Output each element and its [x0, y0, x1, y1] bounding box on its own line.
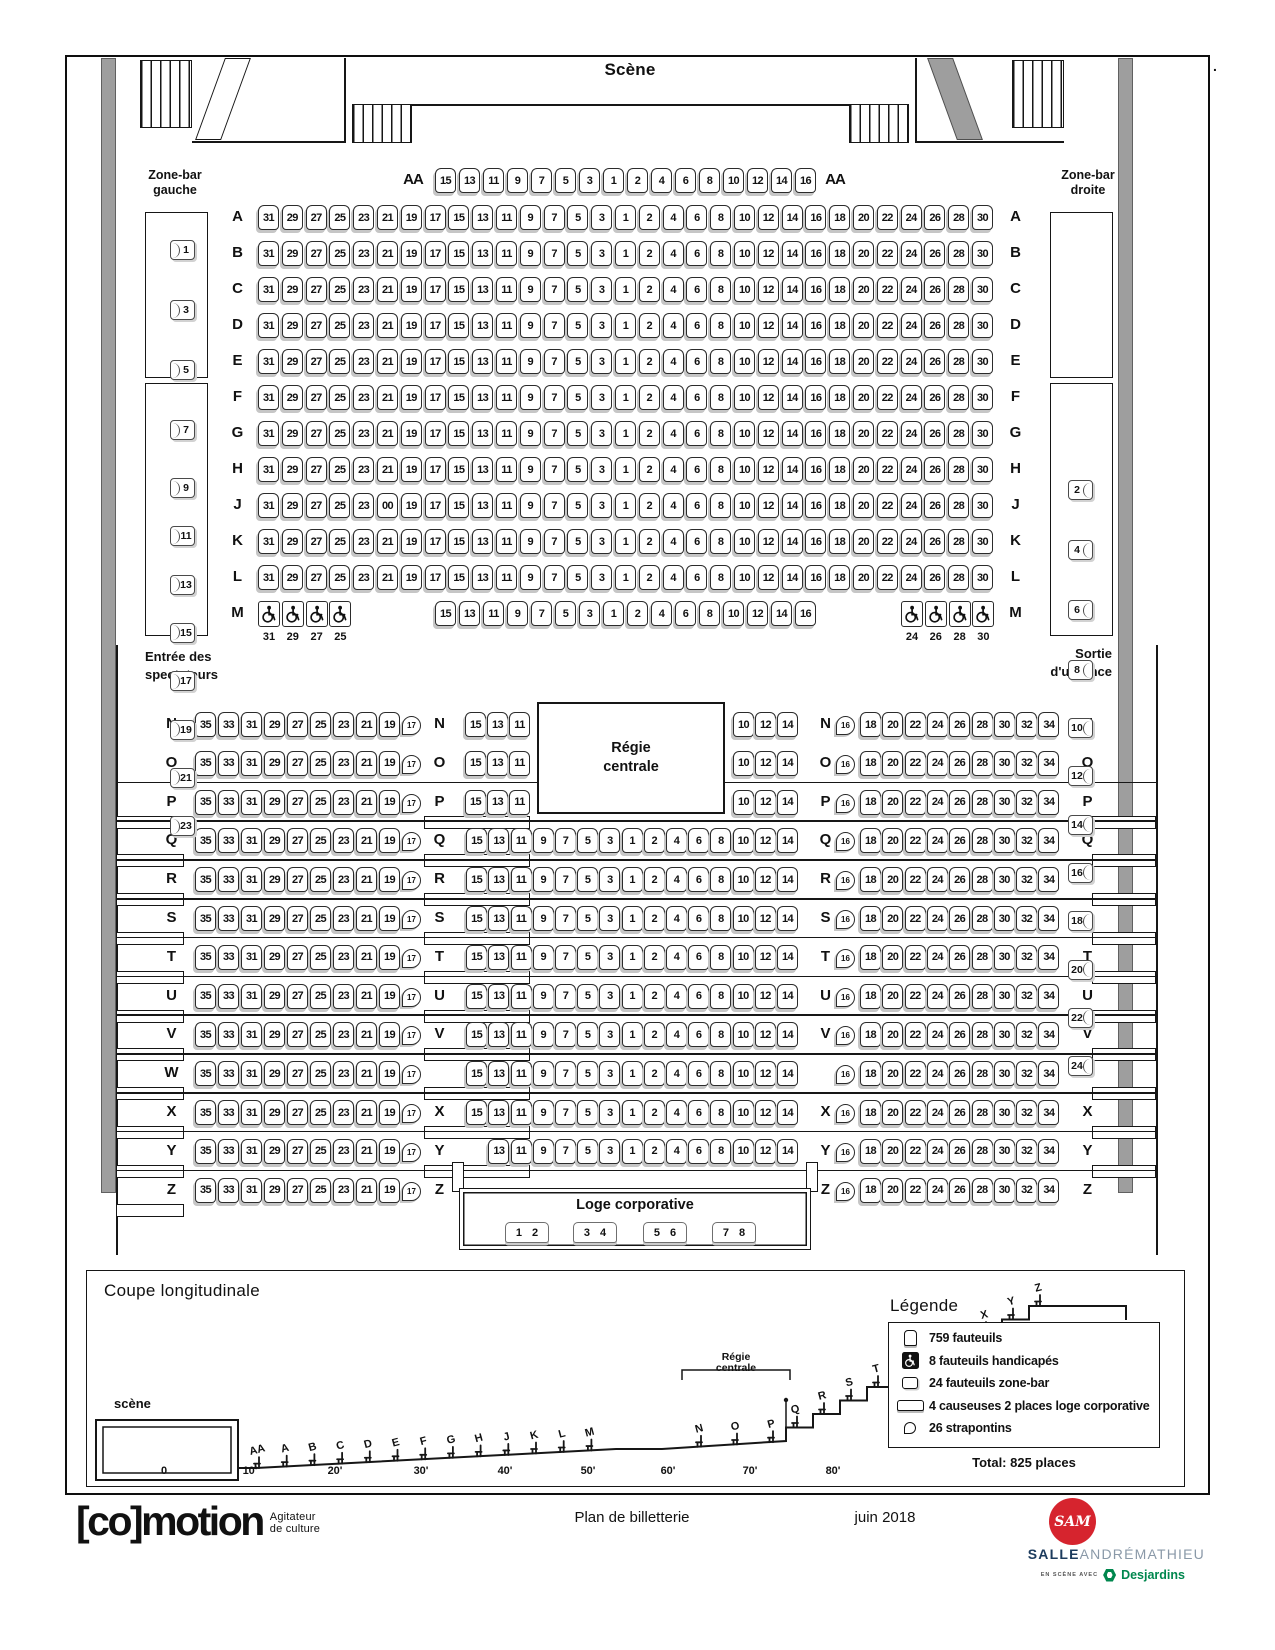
- zone-bar-right-title: Zone-bar droite: [1043, 168, 1133, 198]
- seat: 31: [258, 277, 279, 302]
- seat: 16: [805, 349, 826, 374]
- seat: 22: [905, 1100, 926, 1125]
- seat: 15: [465, 751, 486, 776]
- comotion-tagline: Agitateur de culture: [270, 1511, 320, 1536]
- seat: 20: [882, 1139, 903, 1164]
- seat: 9: [533, 1022, 554, 1047]
- seat: 28: [972, 1178, 993, 1203]
- section-scale-label: 0: [161, 1465, 167, 1477]
- seat: 26: [924, 421, 945, 446]
- control-booth-box: Régie centrale: [537, 702, 725, 814]
- seat: 1: [603, 601, 624, 626]
- seat: 8: [710, 945, 731, 970]
- seat: 17: [425, 529, 446, 554]
- seat: 22: [905, 790, 926, 815]
- wheelchair-icon: [891, 1352, 929, 1369]
- loveseat-number: 2: [532, 1227, 538, 1239]
- seat: 16: [795, 601, 816, 626]
- wheelchair-seat: [972, 601, 994, 627]
- wheelchair-seat-number: 31: [258, 631, 280, 644]
- seat: 22: [905, 1178, 926, 1203]
- seat: 26: [924, 205, 945, 230]
- seat: 9: [520, 277, 541, 302]
- seat: 6: [686, 349, 707, 374]
- loveseat: 56: [643, 1222, 687, 1243]
- seat: 7: [555, 906, 576, 931]
- seat: 18: [829, 457, 850, 482]
- row-label: S: [426, 909, 452, 927]
- seat: 24: [901, 313, 922, 338]
- seat: 34: [1038, 1061, 1059, 1086]
- seat: 31: [258, 241, 279, 266]
- seat: 30: [994, 751, 1015, 776]
- seat: 20: [853, 457, 874, 482]
- seat: 20: [853, 349, 874, 374]
- row-label: AA: [822, 171, 848, 189]
- seat: 14: [782, 421, 803, 446]
- seat: 26: [949, 1022, 970, 1047]
- section-row-letter: Q: [790, 1403, 802, 1417]
- seat: 20: [853, 493, 874, 518]
- loveseat: 12: [505, 1222, 549, 1243]
- row-label: R: [426, 870, 452, 888]
- seat: 34: [1038, 1178, 1059, 1203]
- seat: 24: [927, 1139, 948, 1164]
- seat: 11: [496, 349, 517, 374]
- seat: 6: [688, 906, 709, 931]
- seat: 24: [927, 790, 948, 815]
- seat: 32: [1016, 751, 1037, 776]
- seat: 21: [377, 313, 398, 338]
- seat: 29: [282, 205, 303, 230]
- seat: 30: [972, 421, 993, 446]
- sam-monogram: SAM: [1054, 1514, 1090, 1530]
- seat: 5: [567, 313, 588, 338]
- document-date: juin 2018: [830, 1509, 940, 1526]
- row-label: A: [1002, 208, 1028, 226]
- section-row-letter: Y: [1006, 1295, 1017, 1309]
- plan-page: . Scène Zone-bar gauche Zone-bar droite …: [0, 0, 1275, 1650]
- seat: 12: [758, 385, 779, 410]
- seat: 33: [218, 828, 239, 853]
- seat: 21: [356, 1178, 377, 1203]
- seat: 21: [356, 790, 377, 815]
- seat: 26: [949, 867, 970, 892]
- seat: 4: [666, 906, 687, 931]
- seat: 8: [710, 565, 731, 590]
- seat: 8: [699, 168, 720, 193]
- seat: 18: [829, 565, 850, 590]
- seat: 15: [448, 565, 469, 590]
- seat: 30: [972, 385, 993, 410]
- seat: 6: [686, 493, 707, 518]
- seat: 21: [377, 529, 398, 554]
- seat: 23: [333, 1139, 354, 1164]
- seat: 23: [333, 751, 354, 776]
- seat: 10: [734, 529, 755, 554]
- seat: 11: [509, 751, 530, 776]
- section-row-letter: C: [335, 1439, 346, 1453]
- seat: 2: [627, 168, 648, 193]
- seat: 19: [379, 1100, 400, 1125]
- seat: 15: [465, 712, 486, 737]
- section-row-letter: O: [730, 1420, 742, 1434]
- seat: 9: [520, 421, 541, 446]
- seat: 10: [733, 984, 754, 1009]
- seat: 11: [511, 1022, 532, 1047]
- section-chair-icon: [873, 1376, 879, 1387]
- seat: 2: [639, 493, 660, 518]
- seat: 7: [555, 1022, 576, 1047]
- row-label: T: [158, 948, 184, 966]
- seat: 13: [488, 984, 509, 1009]
- stage-stairs-right: [1012, 60, 1064, 128]
- seat: 26: [949, 945, 970, 970]
- seat: 12: [758, 493, 779, 518]
- seat: 27: [306, 241, 327, 266]
- seat: 22: [905, 1061, 926, 1086]
- seat: 21: [377, 421, 398, 446]
- seat: 35: [195, 790, 216, 815]
- seat: 28: [972, 945, 993, 970]
- seat: 27: [306, 421, 327, 446]
- zone-bar-right-title-line1: Zone-bar: [1061, 168, 1114, 182]
- section-scale-label: 40': [498, 1465, 513, 1477]
- venue-brand-light: ANDRÉMATHIEU: [1080, 1546, 1205, 1562]
- seat: 3: [591, 421, 612, 446]
- seat: 18: [860, 945, 881, 970]
- strapontin-seat: 17: [402, 1182, 421, 1201]
- seat: 27: [287, 984, 308, 1009]
- row-label: K: [1002, 532, 1028, 550]
- seat: 24: [927, 1061, 948, 1086]
- step-landing: [424, 932, 530, 945]
- seat: 35: [195, 751, 216, 776]
- seat: 3: [599, 1061, 620, 1086]
- seat: 21: [356, 712, 377, 737]
- seat: 16: [805, 457, 826, 482]
- seat: 17: [425, 241, 446, 266]
- seat: 27: [306, 457, 327, 482]
- zone-bar-seat: 8: [1068, 660, 1093, 680]
- step-landing: [424, 1048, 530, 1061]
- seat: 21: [377, 457, 398, 482]
- seat: 10: [734, 493, 755, 518]
- seat: 4: [666, 828, 687, 853]
- seat: 13: [487, 712, 508, 737]
- seat: 12: [755, 751, 776, 776]
- seat: 4: [651, 168, 672, 193]
- seat: 30: [994, 1061, 1015, 1086]
- zone-bar-right-bottom-box: [1050, 383, 1113, 636]
- seat: 27: [287, 1022, 308, 1047]
- partner-name: Desjardins: [1121, 1568, 1185, 1582]
- seat: 11: [511, 1061, 532, 1086]
- seat: 19: [379, 906, 400, 931]
- seat: 5: [567, 457, 588, 482]
- seat: 33: [218, 1178, 239, 1203]
- seat: 27: [306, 565, 327, 590]
- comotion-tagline-line2: de culture: [270, 1523, 320, 1535]
- step-edge: [116, 1131, 1156, 1133]
- seat: 3: [591, 529, 612, 554]
- seat: 25: [329, 421, 350, 446]
- seat: 10: [734, 313, 755, 338]
- exit-sign: Sortie d'urgence: [994, 645, 1112, 680]
- seat: 25: [310, 828, 331, 853]
- seat: 29: [264, 1139, 285, 1164]
- seat: 27: [287, 1178, 308, 1203]
- seat: 11: [496, 493, 517, 518]
- loveseat: 78: [712, 1222, 756, 1243]
- seat: 24: [927, 867, 948, 892]
- seat: 13: [472, 385, 493, 410]
- row-label: AA: [400, 171, 426, 189]
- seat: 20: [853, 205, 874, 230]
- seat: 31: [241, 790, 262, 815]
- seat: 27: [306, 493, 327, 518]
- seat: 4: [666, 1100, 687, 1125]
- wheelchair-seat-number: 27: [306, 631, 328, 644]
- seat: 16: [805, 529, 826, 554]
- seat: 18: [860, 1061, 881, 1086]
- loveseat-icon: [891, 1400, 929, 1411]
- seat: 11: [511, 945, 532, 970]
- seat: 11: [496, 385, 517, 410]
- step-landing: [116, 854, 184, 867]
- strapontin-seat: 16: [836, 794, 855, 813]
- seat: 9: [507, 601, 528, 626]
- seat: 21: [377, 349, 398, 374]
- seat: 14: [777, 712, 798, 737]
- seat: 12: [758, 457, 779, 482]
- seat: 14: [777, 984, 798, 1009]
- step-landing: [116, 1048, 184, 1061]
- seat: 20: [882, 906, 903, 931]
- seat: 29: [282, 457, 303, 482]
- seat: 9: [533, 1100, 554, 1125]
- seat: 25: [329, 241, 350, 266]
- legend-title: Légende: [890, 1296, 958, 1316]
- seat: 9: [520, 205, 541, 230]
- seat: 30: [972, 565, 993, 590]
- step-landing: [116, 1204, 184, 1217]
- seat: 2: [639, 277, 660, 302]
- strapontin-seat: 17: [402, 949, 421, 968]
- zone-bar-seat: 12: [1068, 766, 1093, 786]
- seat: 15: [466, 1100, 487, 1125]
- seat: 25: [329, 529, 350, 554]
- row-label: R: [812, 870, 838, 888]
- zone-bar-seat: 15: [170, 623, 195, 643]
- seat: 20: [853, 313, 874, 338]
- seat: 3: [579, 601, 600, 626]
- section-chair-icon: [503, 1444, 509, 1455]
- seat: 29: [282, 313, 303, 338]
- seat: 1: [615, 313, 636, 338]
- seat: 5: [567, 349, 588, 374]
- seat: 29: [264, 984, 285, 1009]
- strapontin-seat: 17: [402, 1104, 421, 1123]
- row-label: Z: [158, 1181, 184, 1199]
- seat: 24: [901, 349, 922, 374]
- wheelchair-seat: [949, 601, 971, 627]
- seat: 18: [860, 790, 881, 815]
- seat: 15: [448, 457, 469, 482]
- seat: 29: [264, 1178, 285, 1203]
- seat: 7: [555, 867, 576, 892]
- row-label: N: [812, 715, 838, 733]
- step-landing: [116, 932, 184, 945]
- seat: 20: [882, 945, 903, 970]
- seat: 18: [860, 984, 881, 1009]
- row-label: V: [812, 1025, 838, 1043]
- seat: 1: [603, 168, 624, 193]
- row-label: Q: [426, 831, 452, 849]
- seat: 22: [877, 313, 898, 338]
- seat: 31: [241, 1061, 262, 1086]
- seat: 11: [511, 906, 532, 931]
- seat: 14: [771, 168, 792, 193]
- seat: 20: [853, 565, 874, 590]
- legend-item-label: 4 causeuses 2 places loge corporative: [929, 1399, 1150, 1413]
- seat: 22: [877, 385, 898, 410]
- seat: 5: [567, 565, 588, 590]
- zone-bar-right-top-box: [1050, 212, 1113, 378]
- seat: 19: [401, 205, 422, 230]
- row-label: Y: [426, 1142, 452, 1160]
- seat: 15: [448, 277, 469, 302]
- seat: 14: [777, 790, 798, 815]
- step-landing: [1092, 1126, 1156, 1139]
- row-label: A: [224, 208, 250, 226]
- step-landing: [424, 816, 530, 829]
- seat: 23: [333, 867, 354, 892]
- seat: 7: [555, 1100, 576, 1125]
- seat: 3: [591, 241, 612, 266]
- seat: 35: [195, 828, 216, 853]
- step-landing: [424, 854, 530, 867]
- seat: 12: [755, 1061, 776, 1086]
- seat: 11: [496, 457, 517, 482]
- seat: 10: [734, 565, 755, 590]
- seat: 19: [401, 565, 422, 590]
- seat: 7: [544, 241, 565, 266]
- loveseat-number: 7: [723, 1227, 729, 1239]
- seat: 10: [734, 457, 755, 482]
- zone-bar-seat: 1: [170, 240, 195, 260]
- seat: 20: [853, 241, 874, 266]
- seat: 23: [333, 1100, 354, 1125]
- zone-bar-seat: 16: [1068, 863, 1093, 883]
- section-chair-icon: [1035, 1295, 1041, 1306]
- section-chair-icon: [819, 1403, 825, 1414]
- section-row-letter: E: [391, 1436, 401, 1449]
- step-landing: [116, 893, 184, 906]
- stray-mark: .: [1213, 58, 1217, 74]
- section-scale-label: 50': [581, 1465, 596, 1477]
- legend-item: 4 causeuses 2 places loge corporative: [891, 1395, 1157, 1418]
- seat: 28: [948, 205, 969, 230]
- section-row-letter: R: [817, 1389, 828, 1403]
- seat: 24: [901, 421, 922, 446]
- seat: 13: [472, 457, 493, 482]
- comotion-logo-bracket: [co]: [76, 1498, 141, 1544]
- seat: 10: [723, 601, 744, 626]
- seat: 2: [644, 906, 665, 931]
- seat: 14: [782, 277, 803, 302]
- seat: 13: [488, 1139, 509, 1164]
- seat: 35: [195, 945, 216, 970]
- seat: 12: [755, 1139, 776, 1164]
- seat: 26: [949, 984, 970, 1009]
- seat: 14: [782, 529, 803, 554]
- seat: 20: [853, 277, 874, 302]
- wheelchair-seat-number: 26: [925, 631, 947, 644]
- left-wall: [101, 58, 116, 1193]
- seat: 25: [310, 751, 331, 776]
- seat: 28: [948, 385, 969, 410]
- step-landing: [1092, 1048, 1156, 1061]
- seat: 12: [755, 1022, 776, 1047]
- seat: 13: [488, 1061, 509, 1086]
- seat: 21: [377, 565, 398, 590]
- seat: 13: [459, 601, 480, 626]
- seat: 6: [686, 457, 707, 482]
- seat: 13: [488, 1100, 509, 1125]
- seat: 6: [686, 385, 707, 410]
- seat: 1: [615, 205, 636, 230]
- step-landing: [1092, 893, 1156, 906]
- seat: 2: [644, 1061, 665, 1086]
- seat: 10: [734, 421, 755, 446]
- seat: 34: [1038, 828, 1059, 853]
- row-label: H: [1002, 460, 1028, 478]
- seat: 3: [599, 906, 620, 931]
- seat: 14: [782, 349, 803, 374]
- loveseat-number: 8: [739, 1227, 745, 1239]
- section-row-letter: S: [844, 1376, 854, 1389]
- seat: 23: [353, 385, 374, 410]
- seat: 2: [644, 828, 665, 853]
- seat: 4: [663, 385, 684, 410]
- seat: 30: [994, 790, 1015, 815]
- seat: 5: [577, 984, 598, 1009]
- section-stage-label: scène: [114, 1396, 151, 1411]
- seat: 2: [639, 205, 660, 230]
- step-landing: [1092, 1087, 1156, 1100]
- seat: 3: [591, 457, 612, 482]
- loveseat-number: 3: [584, 1227, 590, 1239]
- section-scale-label: 70': [743, 1465, 758, 1477]
- seat: 5: [577, 1022, 598, 1047]
- seat: 9: [533, 867, 554, 892]
- section-row-letter: L: [557, 1427, 567, 1440]
- seat: 26: [949, 712, 970, 737]
- seat: 6: [688, 1139, 709, 1164]
- seat: 6: [686, 565, 707, 590]
- seat: 2: [639, 565, 660, 590]
- seat: 20: [882, 790, 903, 815]
- seat: 13: [488, 828, 509, 853]
- section-post-cap: [784, 1398, 788, 1402]
- step-landing: [424, 1010, 530, 1023]
- seat: 27: [287, 1100, 308, 1125]
- seat: 28: [972, 906, 993, 931]
- seat: 8: [710, 906, 731, 931]
- venue-brand-bold: SALLE: [1028, 1546, 1080, 1562]
- section-chair-icon: [696, 1436, 702, 1447]
